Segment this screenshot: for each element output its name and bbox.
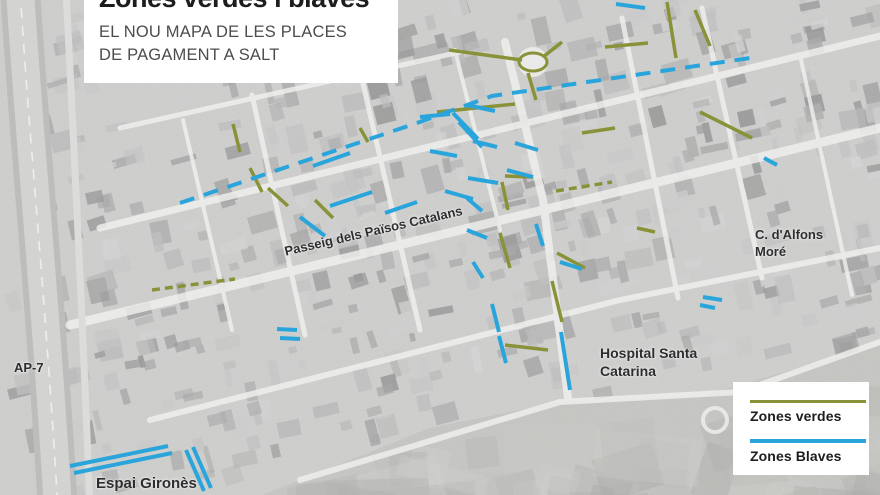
map-label-ap7: AP-7 bbox=[14, 360, 44, 377]
legend-label-blue: Zones Blaves bbox=[750, 448, 869, 464]
subtitle-line-2: DE PAGAMENT A SALT bbox=[99, 44, 384, 67]
map-label-espai-girones: Espai Gironès bbox=[96, 474, 197, 494]
legend-item-green: Zones verdes bbox=[750, 400, 869, 424]
page-title: Zones verdes i blaves bbox=[99, 0, 384, 13]
green-zone-line-swatch bbox=[750, 400, 866, 403]
legend-item-blue: Zones Blaves bbox=[750, 439, 869, 464]
infographic-map-page: Passeig dels Països Catalans C. d'Alfons… bbox=[0, 0, 880, 495]
map-label-hospital-santa-catarina: Hospital Santa Catarina bbox=[600, 344, 730, 380]
map-label-alfons-more: C. d'Alfons Moré bbox=[755, 227, 850, 261]
subtitle-line-1: EL NOU MAPA DE LES PLACES bbox=[99, 21, 384, 44]
title-card: Zones verdes i blaves EL NOU MAPA DE LES… bbox=[84, 0, 398, 83]
map-legend: Zones verdes Zones Blaves bbox=[733, 382, 869, 475]
title-clip: Zones verdes i blaves bbox=[99, 0, 384, 13]
blue-zone-line-swatch bbox=[750, 439, 866, 443]
page-subtitle: EL NOU MAPA DE LES PLACES DE PAGAMENT A … bbox=[99, 21, 384, 68]
legend-label-green: Zones verdes bbox=[750, 408, 869, 424]
